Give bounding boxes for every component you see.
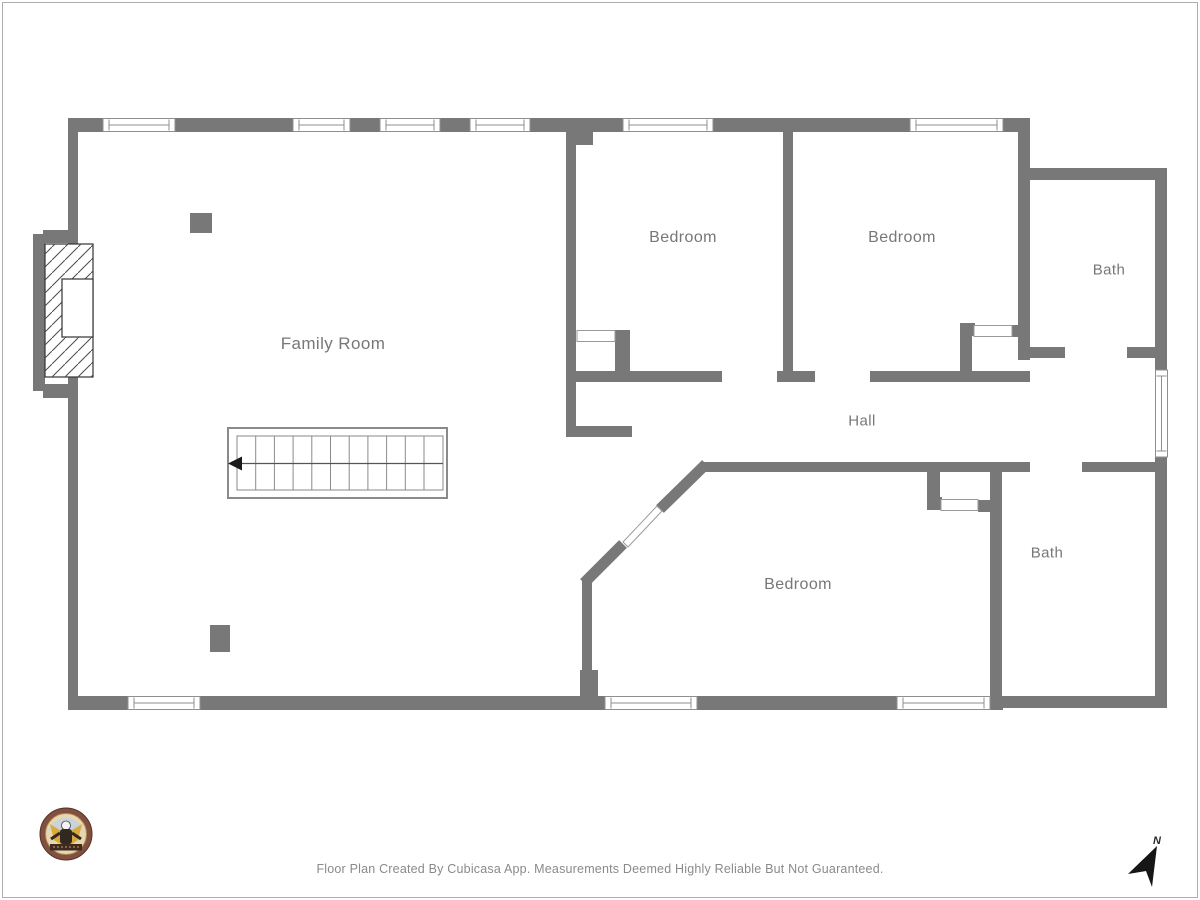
wall-bedrooms-south-b xyxy=(777,371,815,382)
room-label-bedroom-3: Bedroom xyxy=(764,576,832,594)
wall-bedroom-divider xyxy=(783,132,793,372)
wall-right-lower xyxy=(1155,456,1167,708)
window xyxy=(910,119,1003,132)
fireplace-firebox xyxy=(62,279,93,337)
room-label-family-room: Family Room xyxy=(281,334,386,354)
window xyxy=(293,119,350,132)
fireplace-surround xyxy=(43,230,69,243)
window xyxy=(128,697,200,710)
floor-plan-page: Family Room Bedroom Bedroom Bath Hall Be… xyxy=(0,0,1200,900)
bedroom3-diagonal-door xyxy=(623,506,662,547)
doors xyxy=(577,326,1012,548)
wall-bedrooms-south-a xyxy=(566,371,722,382)
wall-stair-landing xyxy=(566,426,632,437)
wall-diagonal-upper xyxy=(660,464,706,509)
wall-bed2-closet-stub xyxy=(960,323,975,336)
wall-bed2-closet-nub xyxy=(1012,325,1030,337)
room-label-hall: Hall xyxy=(848,413,875,430)
wall-hall-south-a xyxy=(702,462,1030,472)
wall-bed3-closet-stub xyxy=(927,497,942,510)
bed1-closet-door xyxy=(577,331,615,342)
wall-bath1-top xyxy=(1030,168,1167,180)
wall-bedroom3-west-step xyxy=(580,670,598,698)
footer-disclaimer: Floor Plan Created By Cubicasa App. Meas… xyxy=(0,862,1200,876)
windows xyxy=(103,119,1168,710)
fireplace xyxy=(33,230,93,398)
wall-ne-corner xyxy=(1018,120,1030,360)
staircase xyxy=(228,428,447,498)
wall-bath1-south-b xyxy=(1127,347,1167,358)
wall-familyroom-divider xyxy=(566,132,576,437)
window xyxy=(897,697,990,710)
wall-left xyxy=(68,118,78,710)
fireplace-surround xyxy=(33,234,45,391)
window xyxy=(1156,370,1168,457)
wall-hall-south-b xyxy=(1082,462,1157,472)
wall-bottom xyxy=(68,696,1003,710)
room-label-bedroom-2: Bedroom xyxy=(868,229,936,247)
room-label-bath-1: Bath xyxy=(1093,262,1125,279)
wall-familyroom-divider-head xyxy=(566,132,593,145)
builder-logo-icon xyxy=(40,808,92,860)
walls xyxy=(68,118,1167,710)
wall-diagonal-lower xyxy=(584,544,623,583)
wall-bedroom3-west xyxy=(582,578,592,672)
window xyxy=(623,119,713,132)
room-label-bedroom-1: Bedroom xyxy=(649,229,717,247)
wall-bed1-closet xyxy=(615,330,630,382)
window xyxy=(470,119,530,132)
wall-right-upper xyxy=(1155,168,1167,371)
room-label-bath-2: Bath xyxy=(1031,545,1063,562)
wall-bath2-west xyxy=(990,472,1002,698)
window xyxy=(103,119,175,132)
wall-bath2-bottom xyxy=(990,696,1167,708)
wall-bedrooms-south-c xyxy=(870,371,1030,382)
north-label: N xyxy=(1153,835,1161,847)
post-column xyxy=(210,625,230,652)
fireplace-surround xyxy=(43,384,69,398)
post-column xyxy=(190,213,212,233)
wall-bath2-west-stub xyxy=(978,500,990,512)
wall-bath1-south-a xyxy=(1030,347,1065,358)
window xyxy=(380,119,440,132)
bed2-closet-door xyxy=(974,326,1012,337)
floor-plan-drawing xyxy=(0,0,1200,900)
window xyxy=(605,697,697,710)
wall-top xyxy=(68,118,1030,132)
bed3-closet-door xyxy=(941,500,978,511)
